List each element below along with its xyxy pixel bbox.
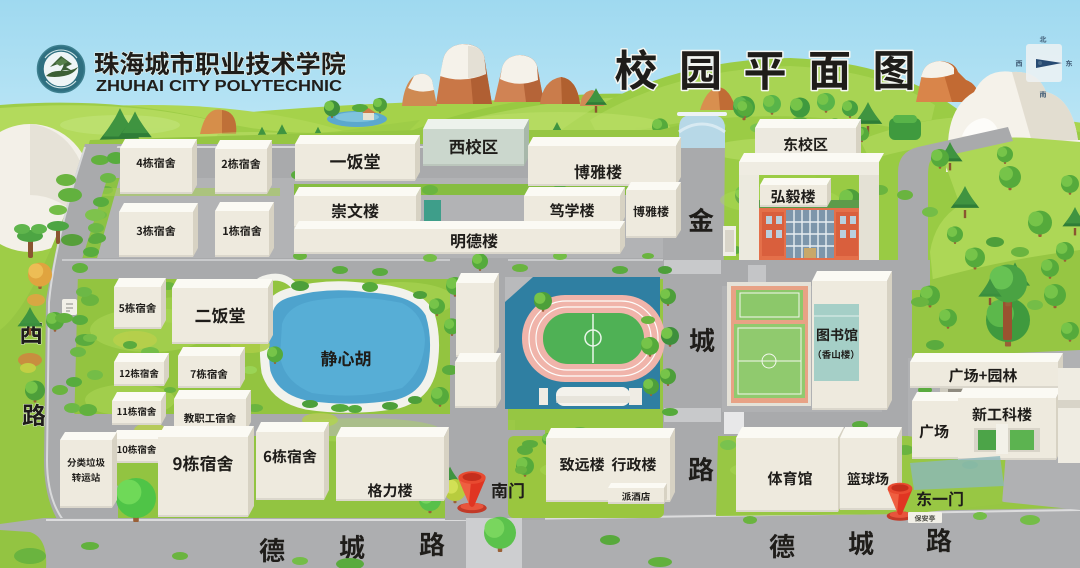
svg-text:ZHUHAI CITY POLYTECHNIC: ZHUHAI CITY POLYTECHNIC (96, 78, 343, 95)
